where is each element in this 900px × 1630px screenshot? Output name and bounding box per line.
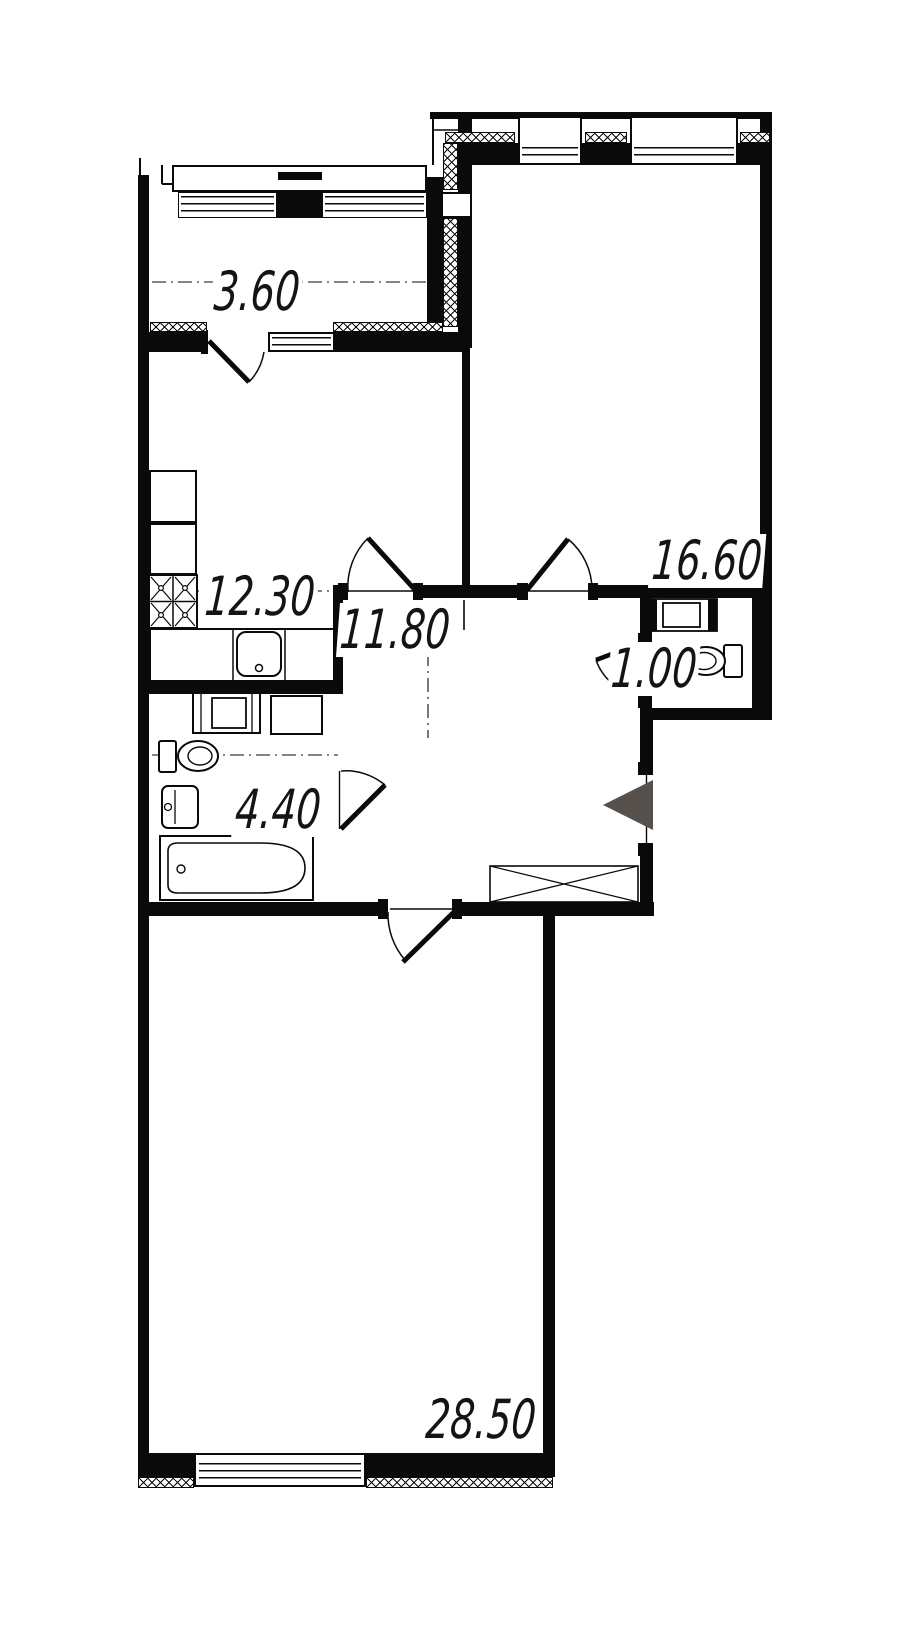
- kitchen-cabinet: [149, 470, 197, 523]
- window-room2: [194, 1453, 366, 1487]
- kitchen-door: [348, 538, 417, 592]
- kitchen-cabinet: [149, 523, 197, 575]
- wall-hall-top-b: [423, 585, 517, 598]
- bathroom-sink-icon: [162, 786, 198, 828]
- sill-stripes: [199, 1463, 361, 1483]
- insulation-hatch: [138, 1477, 194, 1488]
- wall-right-outer: [760, 112, 772, 718]
- wall-bottom-outer-b: [366, 1453, 555, 1477]
- balcony-sill: [178, 192, 277, 218]
- glazing-junction: [443, 192, 470, 218]
- wall-bottom-outer-a: [138, 1453, 194, 1477]
- door-jamb: [452, 899, 462, 919]
- kitchen-counter: [149, 628, 335, 682]
- window-room1-b: [630, 116, 738, 165]
- door-jamb: [588, 583, 598, 600]
- area-label-room1: 16.60: [648, 534, 766, 588]
- wall-topwindow-c: [738, 143, 772, 165]
- insulation-hatch: [150, 322, 207, 332]
- bathroom-cabinet: [270, 695, 323, 735]
- toilet-icon: [159, 741, 218, 772]
- wall-kitchen-room-divider: [462, 348, 470, 588]
- insulation-hatch: [443, 143, 458, 190]
- area-label-room2: 28.50: [422, 1393, 540, 1447]
- sill-stripes: [325, 196, 424, 216]
- wall-wc-right: [752, 590, 760, 708]
- wall-balcony-kitchen-right: [335, 332, 467, 352]
- wall-wc-bottom: [640, 708, 772, 720]
- wall-hall-right-a: [640, 720, 653, 762]
- wall-balcony-kitchen-left: [149, 332, 201, 352]
- sill-stripes: [272, 337, 331, 350]
- glazing-post: [277, 192, 322, 218]
- bathroom-door: [341, 771, 385, 829]
- balcony-door: [209, 341, 264, 382]
- insulation-hatch: [443, 218, 458, 327]
- area-label-bathroom: 4.40: [231, 783, 325, 837]
- stove-icon: [149, 575, 197, 628]
- area-label-loggia: 3.60: [210, 265, 304, 319]
- window-room1-a: [518, 116, 582, 165]
- sill-stripes: [181, 196, 274, 216]
- balcony-sill: [322, 192, 427, 218]
- window-balcony-kitchen: [268, 332, 335, 352]
- insulation-hatch: [445, 132, 515, 143]
- door-jamb: [517, 583, 528, 600]
- wall-kitchen-bath: [138, 682, 343, 694]
- insulation-hatch: [740, 132, 770, 143]
- door-jamb: [378, 899, 388, 919]
- insulation-hatch: [366, 1477, 553, 1488]
- wall-topwindow-b: [582, 143, 630, 165]
- wall-bedroom-right: [543, 916, 555, 1477]
- insulation-hatch: [333, 322, 443, 332]
- wall-left-outer: [138, 175, 149, 1477]
- door-jamb: [638, 843, 653, 856]
- door-jamb: [638, 762, 653, 775]
- balcony-glazing-bar: [278, 172, 322, 180]
- wall-topwindow-a: [458, 143, 518, 165]
- wall-balcony-right-a: [427, 177, 443, 322]
- wall-hall-bottom-b: [462, 902, 654, 916]
- room2-door: [388, 910, 456, 962]
- entrance-arrow: [603, 780, 653, 830]
- area-label-hallway: 11.80: [336, 603, 454, 657]
- bathtub-icon: [160, 836, 313, 900]
- wc-cabinet-icon: [648, 599, 717, 631]
- door-jamb: [201, 330, 208, 354]
- wardrobe-icon: [490, 866, 638, 902]
- sill-stripes: [634, 147, 734, 161]
- area-label-kitchen: 12.30: [201, 570, 319, 624]
- floor-plan: 3.60 12.30 11.80 16.60 1.00 4.40 28.50: [0, 0, 900, 1630]
- wall-wc-left: [640, 598, 652, 633]
- wall-hall-right-b: [640, 856, 653, 903]
- area-label-wc: 1.00: [607, 642, 701, 696]
- washing-machine-icon: [193, 693, 260, 733]
- wall-hall-bottom-a: [138, 902, 378, 916]
- insulation-hatch: [585, 132, 627, 143]
- sill-stripes: [522, 147, 578, 161]
- room1-door: [527, 539, 592, 590]
